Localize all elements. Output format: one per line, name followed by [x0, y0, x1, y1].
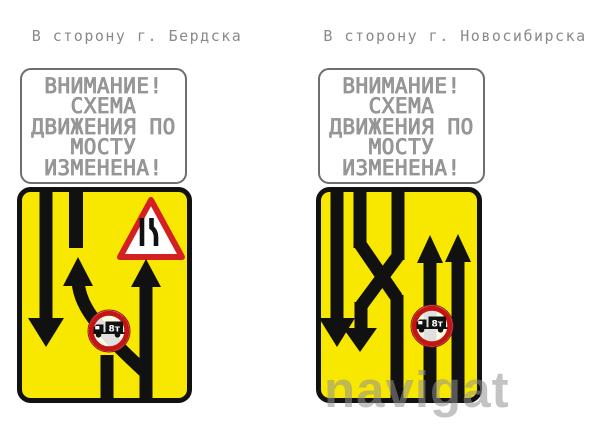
warning-line: СХЕМА [369, 96, 435, 117]
lane-scheme-sign-berdsk: 8т [17, 187, 192, 403]
warning-line: ИЗМЕНЕНА! [342, 158, 460, 179]
watermark: navigat [324, 360, 510, 419]
no-trucks-8t-sign-icon: 8т [411, 305, 453, 347]
weight-limit-label: 8т [108, 325, 120, 335]
direction-title-berdsk: В сторону г. Бердска [14, 27, 260, 45]
warning-line: ВНИМАНИЕ! [342, 76, 460, 97]
warning-line: МОСТУ [71, 137, 137, 158]
warning-box-berdsk: ВНИМАНИЕ! СХЕМА ДВИЖЕНИЯ ПО МОСТУ ИЗМЕНЕ… [20, 68, 187, 184]
warning-line: МОСТУ [369, 137, 435, 158]
warning-box-novosibirsk: ВНИМАНИЕ! СХЕМА ДВИЖЕНИЯ ПО МОСТУ ИЗМЕНЕ… [318, 68, 485, 184]
direction-title-novosibirsk: В сторону г. Новосибирска [310, 27, 600, 45]
warning-line: СХЕМА [71, 96, 137, 117]
warning-line: ДВИЖЕНИЯ ПО [329, 117, 474, 138]
closed-lane-bar [69, 191, 83, 248]
bridge-traffic-scheme-page: В сторону г. Бердска В сторону г. Новоси… [0, 0, 600, 425]
weight-limit-label: 8т [431, 320, 443, 330]
warning-line: ИЗМЕНЕНА! [44, 158, 162, 179]
warning-line: ВНИМАНИЕ! [44, 76, 162, 97]
lane-line-bar [101, 355, 114, 398]
no-trucks-8t-sign-icon: 8т [88, 310, 130, 352]
warning-line: ДВИЖЕНИЯ ПО [31, 117, 176, 138]
